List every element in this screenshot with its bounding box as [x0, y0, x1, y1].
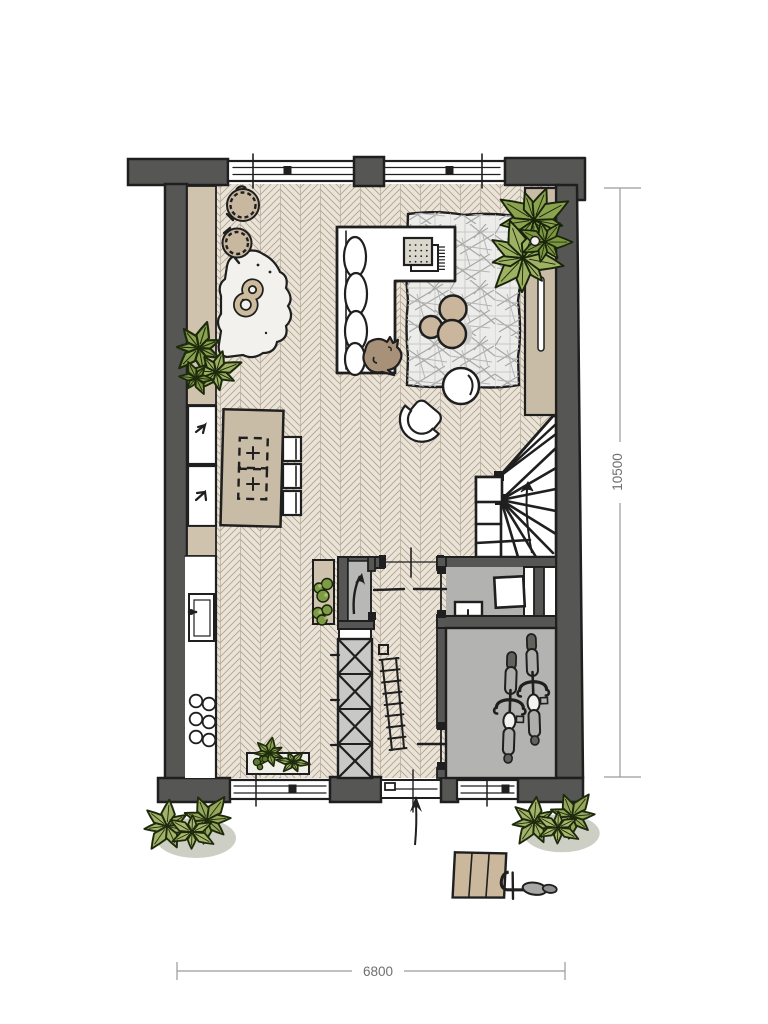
svg-text:6800: 6800 [363, 964, 393, 979]
svg-text:10500: 10500 [610, 453, 625, 491]
